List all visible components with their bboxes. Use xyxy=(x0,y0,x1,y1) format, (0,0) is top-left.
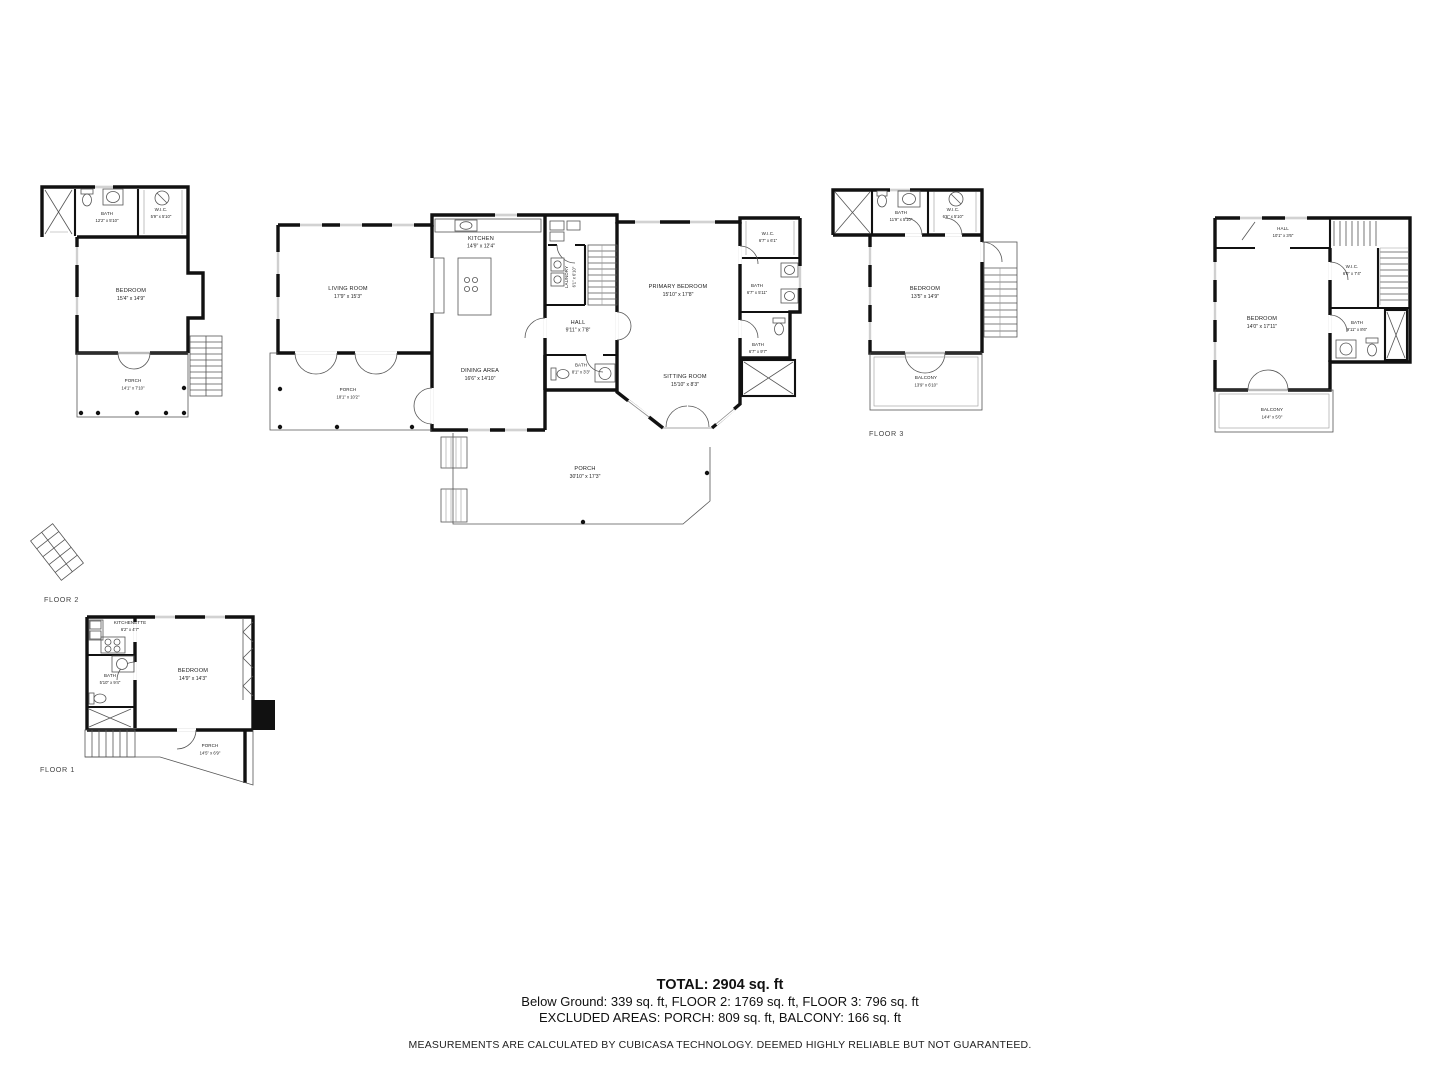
room-label: LAUNDRY xyxy=(564,266,569,288)
room-dims: 13'9" x 6'10" xyxy=(915,383,938,388)
room-label: BATH xyxy=(1351,320,1363,325)
room-label: BATH xyxy=(752,342,764,347)
deck-box-icon xyxy=(742,360,795,396)
floor2-stairs-icon xyxy=(31,524,84,581)
room-label: W.I.C. xyxy=(762,231,775,236)
room-dims: 17'9" x 15'3" xyxy=(334,294,362,300)
room-label: KITCHENETTE xyxy=(114,620,146,625)
sink-icon xyxy=(112,656,134,672)
room-label: W.I.C. xyxy=(1346,264,1359,269)
floor2-main-house: KITCHEN 14'9" x 12'4" LIVING ROOM 17'9" … xyxy=(270,215,800,524)
sink-icon xyxy=(898,191,920,207)
floorplan-drawing: BATH 12'2" x 5'10" W.I.C. 5'9" x 5'10" B… xyxy=(0,0,1440,1080)
door-arcs xyxy=(118,353,150,369)
stairs-icon xyxy=(1334,221,1408,305)
room-dims: 9'11" x 7'8" xyxy=(566,328,591,334)
stairs-icon xyxy=(588,245,617,305)
porch-outline xyxy=(85,730,253,785)
room-dims: 5'10" x 9'4" xyxy=(100,680,121,685)
room-dims: 15'10" x 8'3" xyxy=(671,382,699,388)
room-label: HALL xyxy=(571,320,586,326)
room-dims: 30'10" x 17'3" xyxy=(570,474,601,480)
door-arcs xyxy=(905,218,1002,262)
double-sink-icon xyxy=(781,263,798,303)
shower-icon xyxy=(45,190,72,234)
room-label: KITCHEN xyxy=(468,236,494,242)
kitchen-island xyxy=(458,258,491,315)
room-dims: 10'1" x 3'6" xyxy=(1273,233,1294,238)
floorplan-page: BATH 12'2" x 5'10" W.I.C. 5'9" x 5'10" B… xyxy=(0,0,1440,1080)
room-dims: 6'7" x 6'1" xyxy=(759,238,778,243)
sink-icon xyxy=(103,189,123,205)
room-label: PORCH xyxy=(574,466,595,472)
laundry-closet xyxy=(550,221,580,263)
room-dims: 14'4" x 5'0" xyxy=(1262,415,1283,420)
toilet-icon xyxy=(1366,338,1378,356)
floor3-unit-a: BATH 11'9" x 5'10" W.I.C. 6'6" x 5'10" B… xyxy=(833,190,1017,410)
floor2-left-wing: BATH 12'2" x 5'10" W.I.C. 5'9" x 5'10" B… xyxy=(42,187,222,417)
room-label: PORCH xyxy=(202,743,219,748)
balcony-doors xyxy=(905,353,945,373)
room-label: BEDROOM xyxy=(910,286,940,292)
room-label: BATH xyxy=(751,283,763,288)
kitchen-counter xyxy=(434,219,541,313)
shower-icon xyxy=(89,709,131,727)
room-dims: 12'2" x 5'10" xyxy=(96,218,119,223)
room-dims: 16'6" x 14'10" xyxy=(465,376,496,382)
room-label: BATH xyxy=(104,673,116,678)
floor3b-walls xyxy=(1215,218,1410,390)
shower-icon xyxy=(1385,310,1407,360)
toilet-icon xyxy=(877,191,887,207)
floor1-unit: KITCHENETTE 6'2" x 4'7" BATH 5'10" x 9'4… xyxy=(85,617,275,785)
room-label: BATH xyxy=(575,363,587,368)
total-area-text: TOTAL: 2904 sq. ft xyxy=(0,977,1440,994)
dining-hall-door xyxy=(525,318,545,338)
room-label: SITTING ROOM xyxy=(663,374,707,380)
room-label: BATH xyxy=(895,210,907,215)
floor-areas-text: Below Ground: 339 sq. ft, FLOOR 2: 1769 … xyxy=(0,994,1440,1010)
room-label: PORCH xyxy=(340,387,357,392)
disclaimer-text: MEASUREMENTS ARE CALCULATED BY CUBICASA … xyxy=(0,1039,1440,1051)
room-dims: 13'5" x 14'9" xyxy=(911,294,939,300)
room-dims: 14'9" x 14'3" xyxy=(179,676,207,682)
room-label: PRIMARY BEDROOM xyxy=(649,284,708,290)
stairs-icon xyxy=(190,336,222,396)
floor3-unit-b: HALL 10'1" x 3'6" W.I.C. 6'0" x 7'4" BED… xyxy=(1215,218,1410,432)
room-dims: 14'5" x 6'9" xyxy=(200,751,221,756)
room-dims: 6'0" x 7'4" xyxy=(1343,271,1362,276)
floor2-left-windows xyxy=(77,187,113,315)
chimney-block xyxy=(253,700,275,730)
room-label: BEDROOM xyxy=(1247,316,1277,322)
floor2-left-walls xyxy=(42,187,203,353)
stairs-icon xyxy=(85,730,135,757)
room-dims: 5'9" x 5'10" xyxy=(151,214,172,219)
toilet-icon xyxy=(740,318,785,338)
floor3b-windows xyxy=(1215,218,1307,360)
sink-icon xyxy=(1336,340,1356,358)
floor1-label: FLOOR 1 xyxy=(40,765,75,774)
room-dims: 14'1" x 7'10" xyxy=(122,386,145,391)
room-label: BALCONY xyxy=(1261,407,1283,412)
room-label: BALCONY xyxy=(915,375,937,380)
washer-dryer-icon xyxy=(551,258,564,286)
sitting-room-doors xyxy=(663,406,712,428)
room-label: PORCH xyxy=(125,378,142,383)
room-dims: 6'2" x 4'7" xyxy=(121,627,140,632)
sink-icon xyxy=(595,364,615,382)
closet-rod-icon xyxy=(934,192,976,232)
stairs-icon xyxy=(984,242,1017,337)
balcony-outline xyxy=(870,353,982,410)
floor1-walls xyxy=(87,617,253,783)
toilet-icon xyxy=(551,368,569,380)
toilet-icon xyxy=(89,693,106,704)
floor3-label: FLOOR 3 xyxy=(869,429,904,438)
balcony-doors xyxy=(1248,370,1288,390)
room-dims: 6'7" x 9'7" xyxy=(749,349,768,354)
floor2-label: FLOOR 2 xyxy=(44,595,79,604)
porch-door xyxy=(177,730,196,749)
shower-icon xyxy=(835,192,870,233)
room-label: W.I.C. xyxy=(947,207,960,212)
room-dims: 14'9" x 12'4" xyxy=(467,244,495,250)
room-dims: 6'7" x 5'11" xyxy=(747,290,768,295)
room-dims: 8'1" x 3'3" xyxy=(572,370,591,375)
room-dims: 14'0" x 17'11" xyxy=(1247,324,1278,330)
room-label: DINING AREA xyxy=(461,368,499,374)
closet-rod-icon xyxy=(144,190,182,234)
room-label: W.I.C. xyxy=(155,207,168,212)
room-dims: 15'10" x 17'8" xyxy=(663,292,694,298)
room-dims: 15'4" x 14'9" xyxy=(117,296,145,302)
room-dims: 6'6" x 5'10" xyxy=(943,214,964,219)
room-label: BEDROOM xyxy=(178,668,208,674)
area-summary: TOTAL: 2904 sq. ft Below Ground: 339 sq.… xyxy=(0,977,1440,1051)
primary-bedroom-door xyxy=(617,312,631,340)
room-label: HALL xyxy=(1277,226,1289,231)
room-dims: 18'1" x 10'2" xyxy=(337,395,360,400)
room-dims: 11'9" x 5'10" xyxy=(890,217,913,222)
room-label: BEDROOM xyxy=(116,288,146,294)
room-label: BATH xyxy=(101,211,113,216)
excluded-areas-text: EXCLUDED AREAS: PORCH: 809 sq. ft, BALCO… xyxy=(0,1010,1440,1026)
room-dims: 6'1" x 6'10" xyxy=(572,266,577,287)
toilet-icon xyxy=(81,189,93,206)
room-dims: 9'11" x 8'6" xyxy=(1347,327,1368,332)
room-label: LIVING ROOM xyxy=(328,286,368,292)
